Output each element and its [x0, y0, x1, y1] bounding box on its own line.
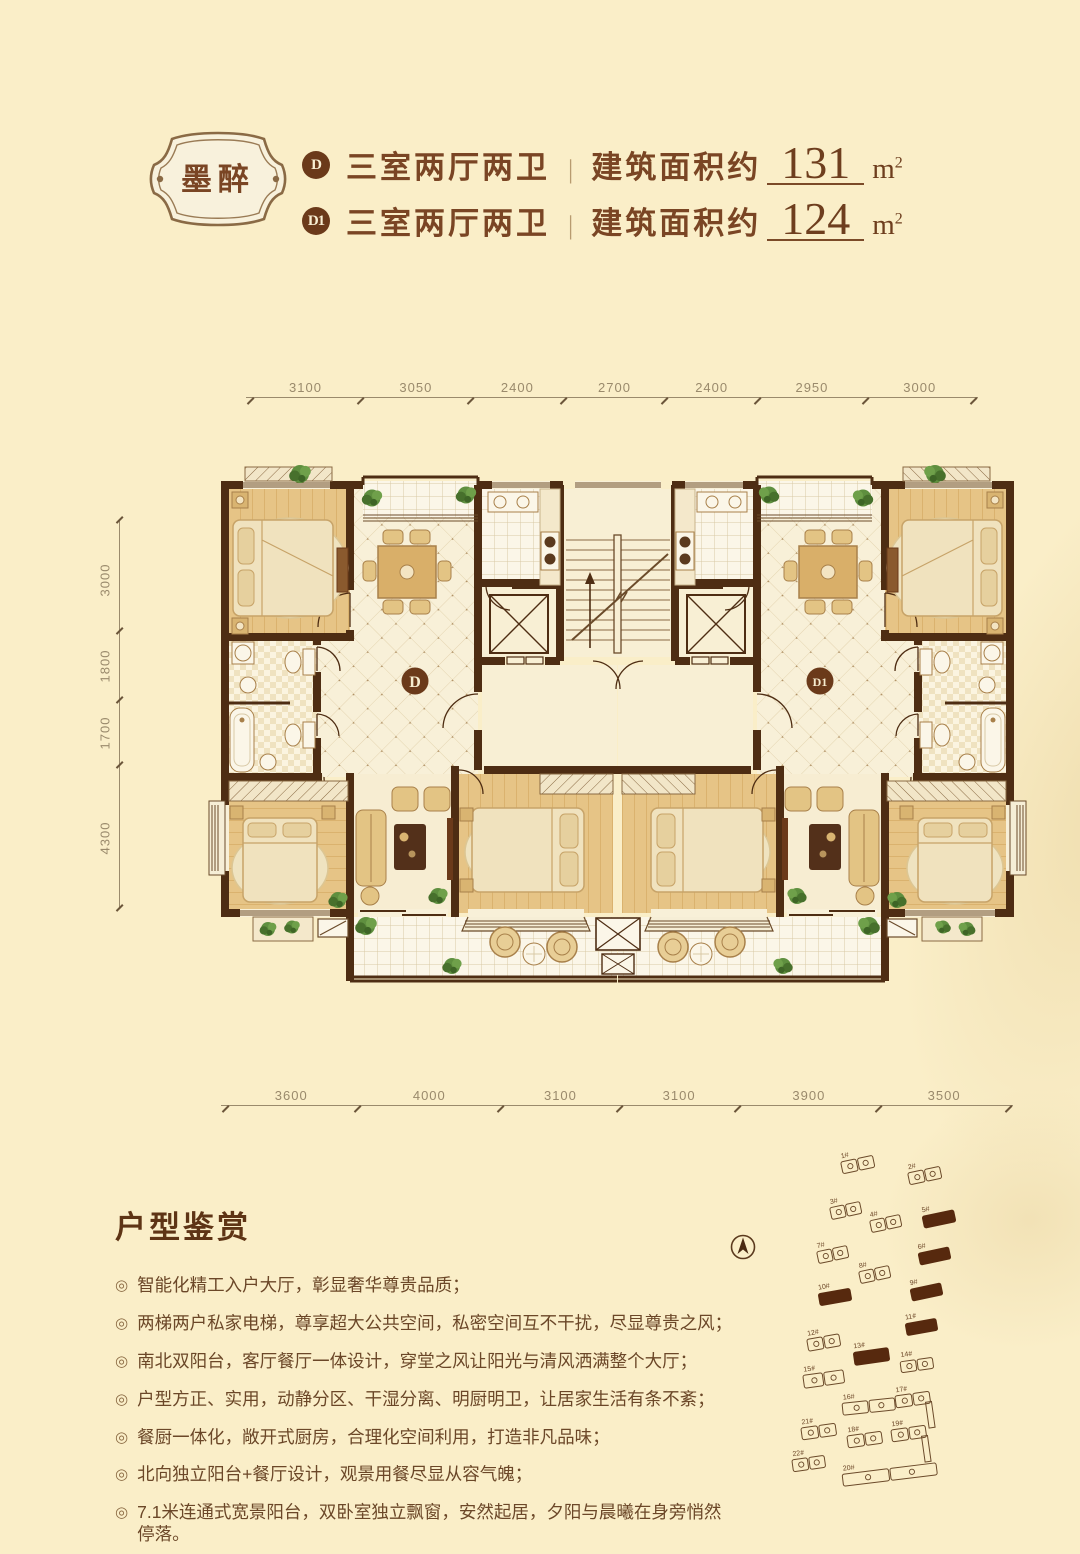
dimension-segment: 3500	[879, 1086, 1009, 1112]
unit-spec-row: D1 三室两厅两卫 | 建筑面积约 124 m2	[302, 198, 903, 244]
unit-tag-coin: D	[302, 151, 330, 179]
bullet-icon: ◎	[115, 1313, 128, 1335]
dimension-value: 3900	[792, 1088, 825, 1112]
feature-bullet: ◎ 智能化精工入户大厅，彰显奢华尊贵品质；	[115, 1275, 735, 1297]
unit-label-d1: D1	[807, 668, 834, 695]
siteplan-building: 12#	[806, 1333, 842, 1352]
bullet-icon: ◎	[115, 1351, 128, 1373]
unit-tag-coin: D1	[302, 207, 330, 235]
feature-bullet: ◎ 7.1米连通式宽景阳台，双卧室独立飘窗，安然起居，夕阳与晨曦在身旁悄然停落。	[115, 1502, 735, 1546]
area-unit: m2	[872, 209, 903, 242]
area-unit: m2	[872, 153, 903, 186]
dimension-segment: 4000	[358, 1086, 502, 1112]
siteplan-building: 18#	[846, 1431, 883, 1449]
dimension-chain-left: 3000180017004300	[96, 523, 126, 905]
unit-spec-list: D 三室两厅两卫 | 建筑面积约 131 m2 D1 三室两厅两卫 | 建筑面积…	[302, 142, 903, 244]
dimension-segment: 2400	[471, 378, 564, 404]
dimension-segment: 3900	[738, 1086, 879, 1112]
siteplan-building: 1#	[840, 1155, 876, 1175]
bullet-text: 南北双阳台，客厅餐厅一体设计，穿堂之风让阳光与清风洒满整个大厅；	[137, 1351, 697, 1373]
dimension-segment: 3600	[225, 1086, 358, 1112]
features-section: 户型鉴赏 ◎ 智能化精工入户大厅，彰显奢华尊贵品质； ◎ 两梯两户私家电梯，尊享…	[115, 1202, 735, 1554]
building-label: 16#	[843, 1393, 855, 1401]
bullet-text: 户型方正、实用，动静分区、干湿分离、明厨明卫，让居家生活有条不紊；	[137, 1389, 715, 1411]
dimension-segment: 2400	[665, 378, 758, 404]
unit-label-d: D	[402, 668, 429, 695]
bullet-text: 两梯两户私家电梯，尊享超大公共空间，私密空间互不干扰，尽显尊贵之风；	[137, 1313, 732, 1335]
dimension-value: 2700	[598, 380, 631, 404]
siteplan-building: 14#	[899, 1356, 934, 1373]
dimension-value: 3500	[928, 1088, 961, 1112]
siteplan-building: 4#	[869, 1214, 903, 1233]
siteplan-building: 8#	[858, 1265, 892, 1284]
brochure-page: 墨醉 D 三室两厅两卫 | 建筑面积约 131 m2 D1 三室两厅两卫 | 建…	[0, 0, 1080, 1554]
bullet-text: 北向独立阳台+餐厅设计，观景用餐尽显从容气魄；	[137, 1464, 532, 1486]
badge-dot-right	[273, 176, 279, 182]
siteplan-building: 19#	[890, 1425, 927, 1443]
dimension-segment: 4300	[96, 762, 126, 905]
unit-layout-text: 三室两厅两卫	[346, 198, 550, 243]
dimension-segment: 3100	[620, 1086, 739, 1112]
badge-dot-left	[157, 176, 163, 182]
bullet-icon: ◎	[115, 1389, 128, 1411]
dimension-segment: 3000	[866, 378, 974, 404]
feature-bullet: ◎ 户型方正、实用，动静分区、干湿分离、明厨明卫，让居家生活有条不紊；	[115, 1389, 735, 1411]
svg-text:D1: D1	[813, 675, 828, 689]
area-label: 建筑面积约	[591, 142, 761, 187]
dimension-value: 1700	[98, 708, 113, 750]
dimension-segment: 3100	[501, 1086, 620, 1112]
dimension-value: 1800	[98, 641, 113, 683]
siteplan-building: 21#	[800, 1423, 837, 1441]
dimension-value: 3600	[275, 1088, 308, 1112]
bullet-text: 餐厨一体化，敞开式厨房，合理化空间利用，打造非凡品味；	[137, 1427, 610, 1449]
dimension-segment: 3000	[96, 523, 126, 627]
bullet-text: 7.1米连通式宽景阳台，双卧室独立飘窗，安然起居，夕阳与晨曦在身旁悄然停落。	[137, 1502, 735, 1546]
features-title: 户型鉴赏	[115, 1202, 735, 1247]
dimension-segment: 1700	[96, 696, 126, 762]
feature-bullet: ◎ 北向独立阳台+餐厅设计，观景用餐尽显从容气魄；	[115, 1464, 735, 1486]
siteplan-building: 22#	[791, 1455, 826, 1473]
area-unit-exponent: 2	[895, 154, 903, 171]
unit-spec-row: D 三室两厅两卫 | 建筑面积约 131 m2	[302, 142, 903, 188]
siteplan-map: 1# 2# 3# 4# 5# 7# 6# 8#	[770, 1150, 1080, 1554]
siteplan-building: 10#	[817, 1287, 853, 1307]
bullet-text: 智能化精工入户大厅，彰显奢华尊贵品质；	[137, 1275, 470, 1297]
dimension-value: 3000	[98, 554, 113, 596]
dimension-segment: 2700	[564, 378, 665, 404]
siteplan-building: 16#	[841, 1397, 896, 1416]
dimension-value: 4000	[413, 1088, 446, 1112]
area-unit-exponent: 2	[895, 210, 903, 227]
dimension-value: 2400	[695, 380, 728, 404]
dimension-value: 3050	[399, 380, 432, 404]
feature-bullet: ◎ 餐厨一体化，敞开式厨房，合理化空间利用，打造非凡品味；	[115, 1427, 735, 1449]
dimension-segment: 2950	[758, 378, 865, 404]
siteplan-building: 6#	[917, 1246, 952, 1267]
building-label: 20#	[843, 1464, 855, 1472]
dimension-value: 3000	[903, 380, 936, 404]
dimension-value: 3100	[289, 380, 322, 404]
siteplan-building: 5#	[921, 1209, 957, 1230]
area-value: 131	[767, 142, 864, 185]
dimension-value: 2400	[501, 380, 534, 404]
siteplan-building: 11#	[904, 1317, 939, 1337]
spec-divider: |	[568, 155, 573, 185]
brand-badge: 墨醉	[146, 130, 290, 230]
badge-text: 墨醉	[181, 162, 255, 197]
feature-bullet: ◎ 两梯两户私家电梯，尊享超大公共空间，私密空间互不干扰，尽显尊贵之风；	[115, 1313, 735, 1335]
feature-bullet: ◎ 南北双阳台，客厅餐厅一体设计，穿堂之风让阳光与清风洒满整个大厅；	[115, 1351, 735, 1373]
bullet-icon: ◎	[115, 1502, 128, 1524]
spec-divider: |	[568, 211, 573, 241]
unit-layout-text: 三室两厅两卫	[346, 142, 550, 187]
area-unit-base: m	[872, 153, 895, 185]
floorplan: D D1	[0, 340, 1080, 1150]
building-label: 14#	[900, 1351, 913, 1360]
svg-text:D: D	[409, 674, 421, 691]
dimension-segment: 1800	[96, 627, 126, 696]
bullet-icon: ◎	[115, 1275, 128, 1297]
area-value: 124	[767, 198, 864, 241]
north-compass-icon	[728, 1232, 758, 1262]
dimension-chain-top: 3100305024002700240029503000	[250, 378, 974, 404]
siteplan-building: 7#	[816, 1245, 850, 1264]
dimension-value: 3100	[544, 1088, 577, 1112]
area-unit-base: m	[872, 209, 895, 241]
siteplan-building: 13#	[852, 1346, 891, 1366]
siteplan-building: 20#	[842, 1462, 939, 1487]
siteplan-building: 17#	[894, 1391, 931, 1409]
features-bullet-list: ◎ 智能化精工入户大厅，彰显奢华尊贵品质； ◎ 两梯两户私家电梯，尊享超大公共空…	[115, 1275, 735, 1546]
dimension-value: 2950	[795, 380, 828, 404]
bullet-icon: ◎	[115, 1464, 128, 1486]
dimension-chain-bottom: 360040003100310039003500	[225, 1086, 1009, 1112]
siteplan-building: 3#	[829, 1201, 863, 1220]
dimension-value: 3100	[663, 1088, 696, 1112]
dimension-segment: 3100	[250, 378, 361, 404]
siteplan-building: 9#	[909, 1282, 944, 1303]
bullet-icon: ◎	[115, 1427, 128, 1449]
dimension-segment: 3050	[361, 378, 471, 404]
area-label: 建筑面积约	[591, 198, 761, 243]
siteplan-building: 2#	[907, 1166, 943, 1186]
siteplan-building: 15#	[802, 1369, 846, 1389]
dimension-value: 4300	[98, 812, 113, 854]
